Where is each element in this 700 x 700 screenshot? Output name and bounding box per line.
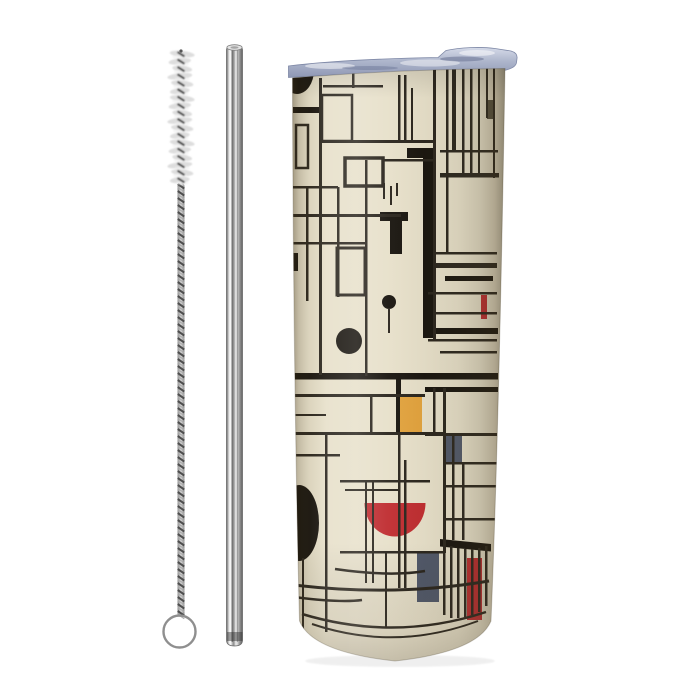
product-photo-svg	[0, 0, 700, 700]
lid-shade-2	[440, 57, 484, 62]
straw-bottom-band	[227, 632, 243, 641]
tumbler	[279, 46, 517, 661]
lid-highlight-3	[459, 50, 495, 56]
cleaning-brush	[164, 49, 196, 647]
straw-top-opening	[231, 46, 239, 48]
brush-handle-loop	[164, 616, 196, 648]
brush-wire-tip	[179, 49, 182, 52]
metal-straw	[227, 45, 243, 646]
straw-seam-line-2	[237, 47, 238, 642]
straw-seam-line	[232, 47, 234, 642]
product-photo	[0, 0, 700, 700]
straw-tube	[227, 46, 243, 647]
lid-shade-1	[342, 66, 398, 70]
tumbler-vertical-shading	[293, 69, 506, 662]
brush-bristles	[167, 50, 195, 185]
